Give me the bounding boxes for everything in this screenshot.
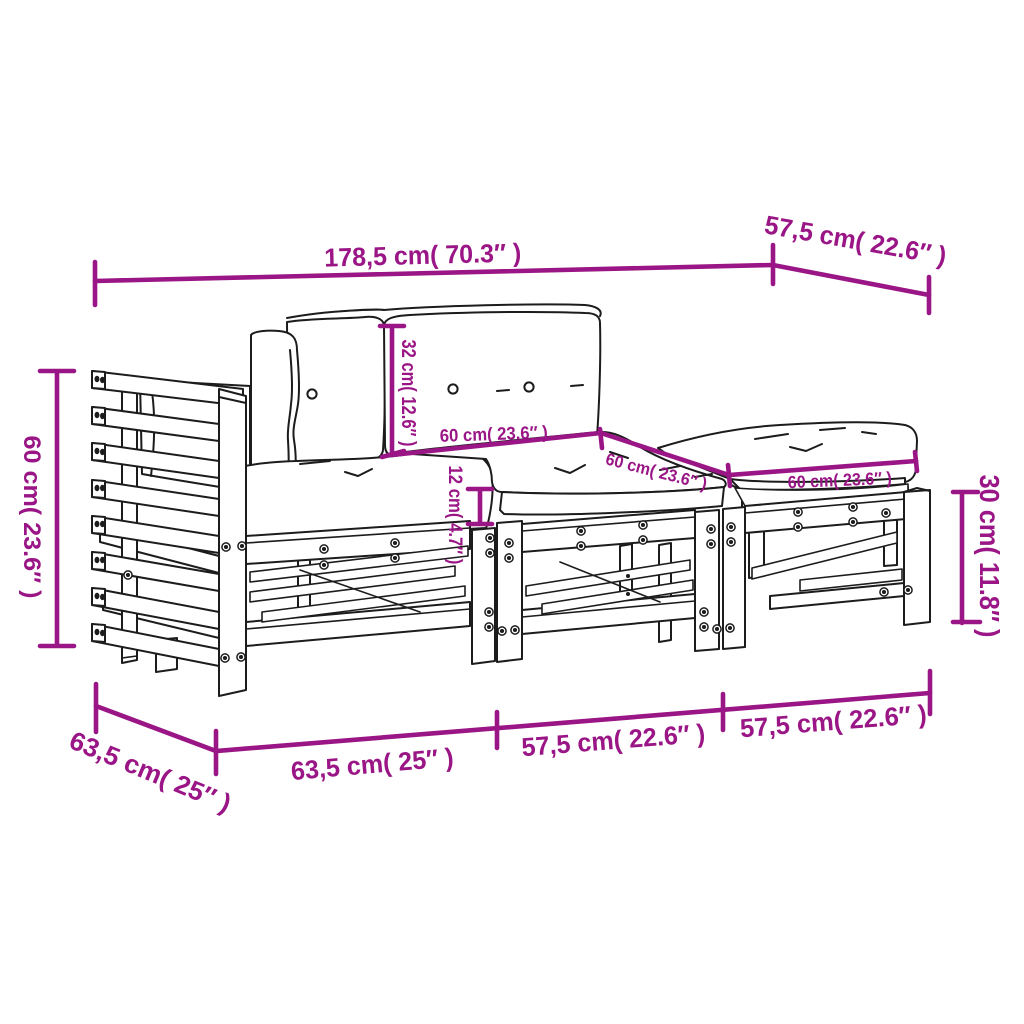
svg-text:12 cm( 4.7″ ): 12 cm( 4.7″ ) [444, 466, 466, 565]
svg-text:178,5 cm( 70.3″ ): 178,5 cm( 70.3″ ) [324, 237, 522, 272]
svg-text:32 cm( 12.6″ ): 32 cm( 12.6″ ) [397, 340, 419, 447]
svg-text:30 cm( 11.8″ ): 30 cm( 11.8″ ) [974, 475, 1005, 638]
svg-text:60 cm( 23.6″ ): 60 cm( 23.6″ ) [439, 422, 548, 446]
svg-text:60 cm( 23.6″ ): 60 cm( 23.6″ ) [18, 436, 45, 599]
